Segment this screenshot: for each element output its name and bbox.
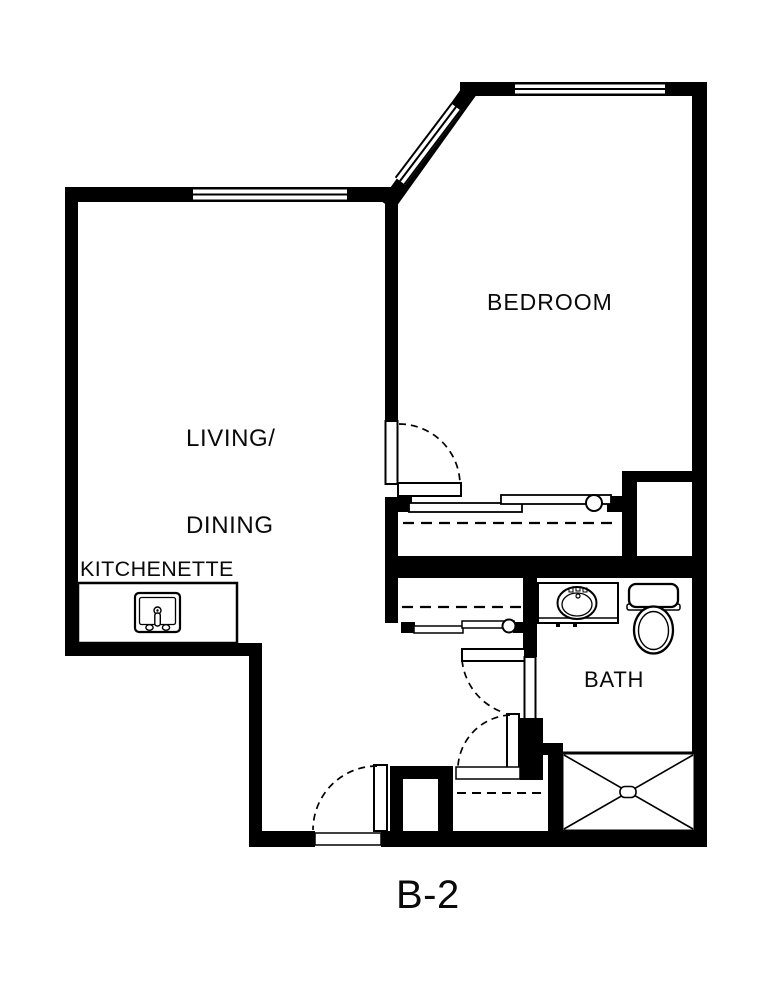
bedroom-door xyxy=(386,421,462,496)
bedroom-closet xyxy=(403,495,618,523)
bay-window xyxy=(396,104,461,185)
bathroom-sink-icon xyxy=(558,587,597,619)
floor-plan-drawing xyxy=(0,0,770,998)
door-swing-arc xyxy=(313,766,377,830)
living-window xyxy=(193,187,347,202)
unit-label: B-2 xyxy=(396,873,460,918)
door-swing-arc xyxy=(458,715,510,766)
living-label-line2: DINING xyxy=(186,511,276,540)
kitchenette-label: KITCHENETTE xyxy=(80,557,234,582)
entry-door xyxy=(313,765,387,845)
bath-door xyxy=(462,649,536,719)
door-pull-icon xyxy=(503,620,516,633)
bedroom-label: BEDROOM xyxy=(487,289,613,316)
hall-door xyxy=(458,714,519,771)
living-label-line1: LIVING/ xyxy=(186,424,276,453)
door-pull-icon xyxy=(586,495,602,511)
shower-icon xyxy=(562,753,695,831)
bedroom-window xyxy=(515,82,665,96)
door-swing-arc xyxy=(399,424,460,485)
shower-drain xyxy=(620,787,636,798)
sliding-door-symbol xyxy=(414,626,463,633)
hall-closet xyxy=(402,607,521,633)
floorplan-page: LIVING/ DINING BEDROOM KITCHENETTE BATH … xyxy=(0,0,770,998)
door-swing-arc xyxy=(462,660,502,712)
bath-label: BATH xyxy=(584,667,644,693)
toilet-icon xyxy=(627,584,680,654)
kitchen-sink-icon xyxy=(135,593,180,632)
